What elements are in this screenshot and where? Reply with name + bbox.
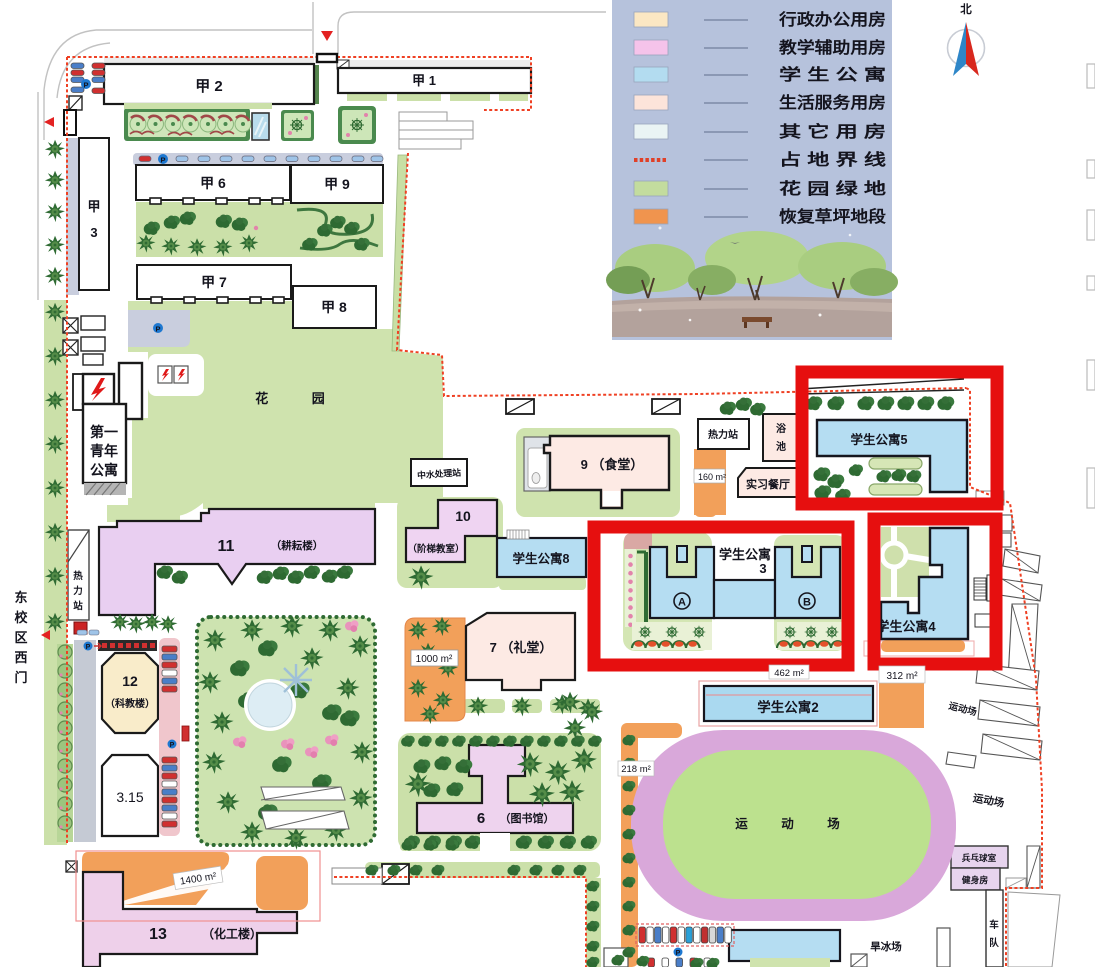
svg-text:（耕耘楼）: （耕耘楼）: [271, 539, 324, 552]
svg-text:10: 10: [455, 508, 471, 524]
svg-text:P: P: [676, 950, 681, 957]
svg-text:兵乓球室: 兵乓球室: [962, 852, 997, 863]
svg-text:恢复草坪地段: 恢复草坪地段: [779, 207, 887, 226]
svg-text:青年: 青年: [90, 443, 118, 459]
svg-text:热: 热: [73, 570, 83, 582]
svg-text:甲 9: 甲 9: [324, 176, 350, 192]
svg-text:甲 7: 甲 7: [201, 274, 227, 290]
svg-text:P: P: [170, 742, 175, 749]
svg-text:学生公寓: 学生公寓: [719, 547, 771, 562]
svg-text:（科教楼）: （科教楼）: [105, 697, 155, 710]
svg-text:7 （礼堂）: 7 （礼堂）: [490, 640, 553, 655]
svg-text:11: 11: [218, 538, 235, 555]
svg-text:学生公寓2: 学生公寓2: [757, 699, 819, 715]
svg-text:其 它 用 房: 其 它 用 房: [779, 122, 886, 141]
svg-text:学生公寓8: 学生公寓8: [513, 551, 570, 566]
svg-text:行政办公用房: 行政办公用房: [778, 10, 886, 29]
svg-text:车: 车: [989, 919, 999, 931]
svg-text:160 m²: 160 m²: [698, 472, 726, 482]
svg-text:热力站: 热力站: [708, 428, 738, 441]
svg-text:甲 8: 甲 8: [321, 299, 347, 315]
svg-text:校: 校: [14, 610, 28, 625]
svg-text:队: 队: [989, 937, 999, 949]
svg-text:学生公寓5: 学生公寓5: [851, 432, 908, 447]
svg-text:P: P: [83, 81, 88, 90]
svg-text:9 （食堂）: 9 （食堂）: [581, 457, 644, 472]
svg-text:浴: 浴: [776, 422, 787, 435]
svg-text:12: 12: [122, 673, 138, 689]
svg-text:B: B: [803, 597, 811, 609]
svg-text:甲 6: 甲 6: [200, 175, 226, 191]
svg-text:学生公寓4: 学生公寓4: [876, 619, 936, 634]
svg-text:北: 北: [960, 2, 972, 16]
svg-text:A: A: [678, 597, 686, 609]
svg-text:实习餐厅: 实习餐厅: [746, 477, 790, 491]
svg-text:甲 1: 甲 1: [412, 73, 436, 88]
svg-text:区: 区: [14, 630, 27, 645]
svg-text:花 园 绿 地: 花 园 绿 地: [779, 179, 886, 198]
svg-text:教学辅助用房: 教学辅助用房: [779, 38, 886, 57]
svg-text:花 园: 花 园: [255, 391, 345, 406]
svg-text:312 m²: 312 m²: [886, 671, 918, 682]
svg-text:3: 3: [759, 561, 766, 576]
svg-text:健身房: 健身房: [962, 874, 989, 885]
svg-text:运 动 场: 运 动 场: [735, 817, 854, 831]
svg-text:占 地 界 线: 占 地 界 线: [779, 150, 886, 169]
svg-text:（阶梯教室）: （阶梯教室）: [407, 543, 464, 555]
svg-text:东: 东: [14, 590, 27, 605]
svg-text:旱冰场: 旱冰场: [870, 940, 902, 953]
svg-text:P: P: [160, 156, 165, 165]
svg-text:站: 站: [73, 600, 83, 612]
svg-text:池: 池: [776, 440, 786, 453]
svg-text:6: 6: [477, 810, 485, 827]
svg-text:甲: 甲: [87, 199, 100, 214]
svg-text:学 生 公 寓: 学 生 公 寓: [779, 65, 886, 84]
svg-text:3: 3: [90, 225, 97, 240]
svg-text:218 m²: 218 m²: [621, 764, 651, 775]
svg-text:公寓: 公寓: [90, 462, 118, 478]
svg-text:（化工楼）: （化工楼）: [202, 926, 262, 941]
svg-text:生活服务用房: 生活服务用房: [779, 93, 886, 112]
svg-text:P: P: [155, 325, 160, 334]
svg-text:P: P: [86, 644, 91, 651]
svg-text:力: 力: [73, 585, 83, 597]
svg-text:西: 西: [14, 650, 27, 665]
svg-text:第一: 第一: [90, 424, 118, 440]
svg-text:1000 m²: 1000 m²: [416, 654, 453, 665]
svg-text:462 m²: 462 m²: [774, 668, 804, 679]
svg-text:甲 2: 甲 2: [195, 78, 223, 95]
svg-text:（图书馆）: （图书馆）: [500, 811, 555, 825]
svg-text:13: 13: [149, 926, 167, 943]
svg-text:门: 门: [14, 670, 27, 685]
svg-text:3.15: 3.15: [116, 789, 143, 805]
